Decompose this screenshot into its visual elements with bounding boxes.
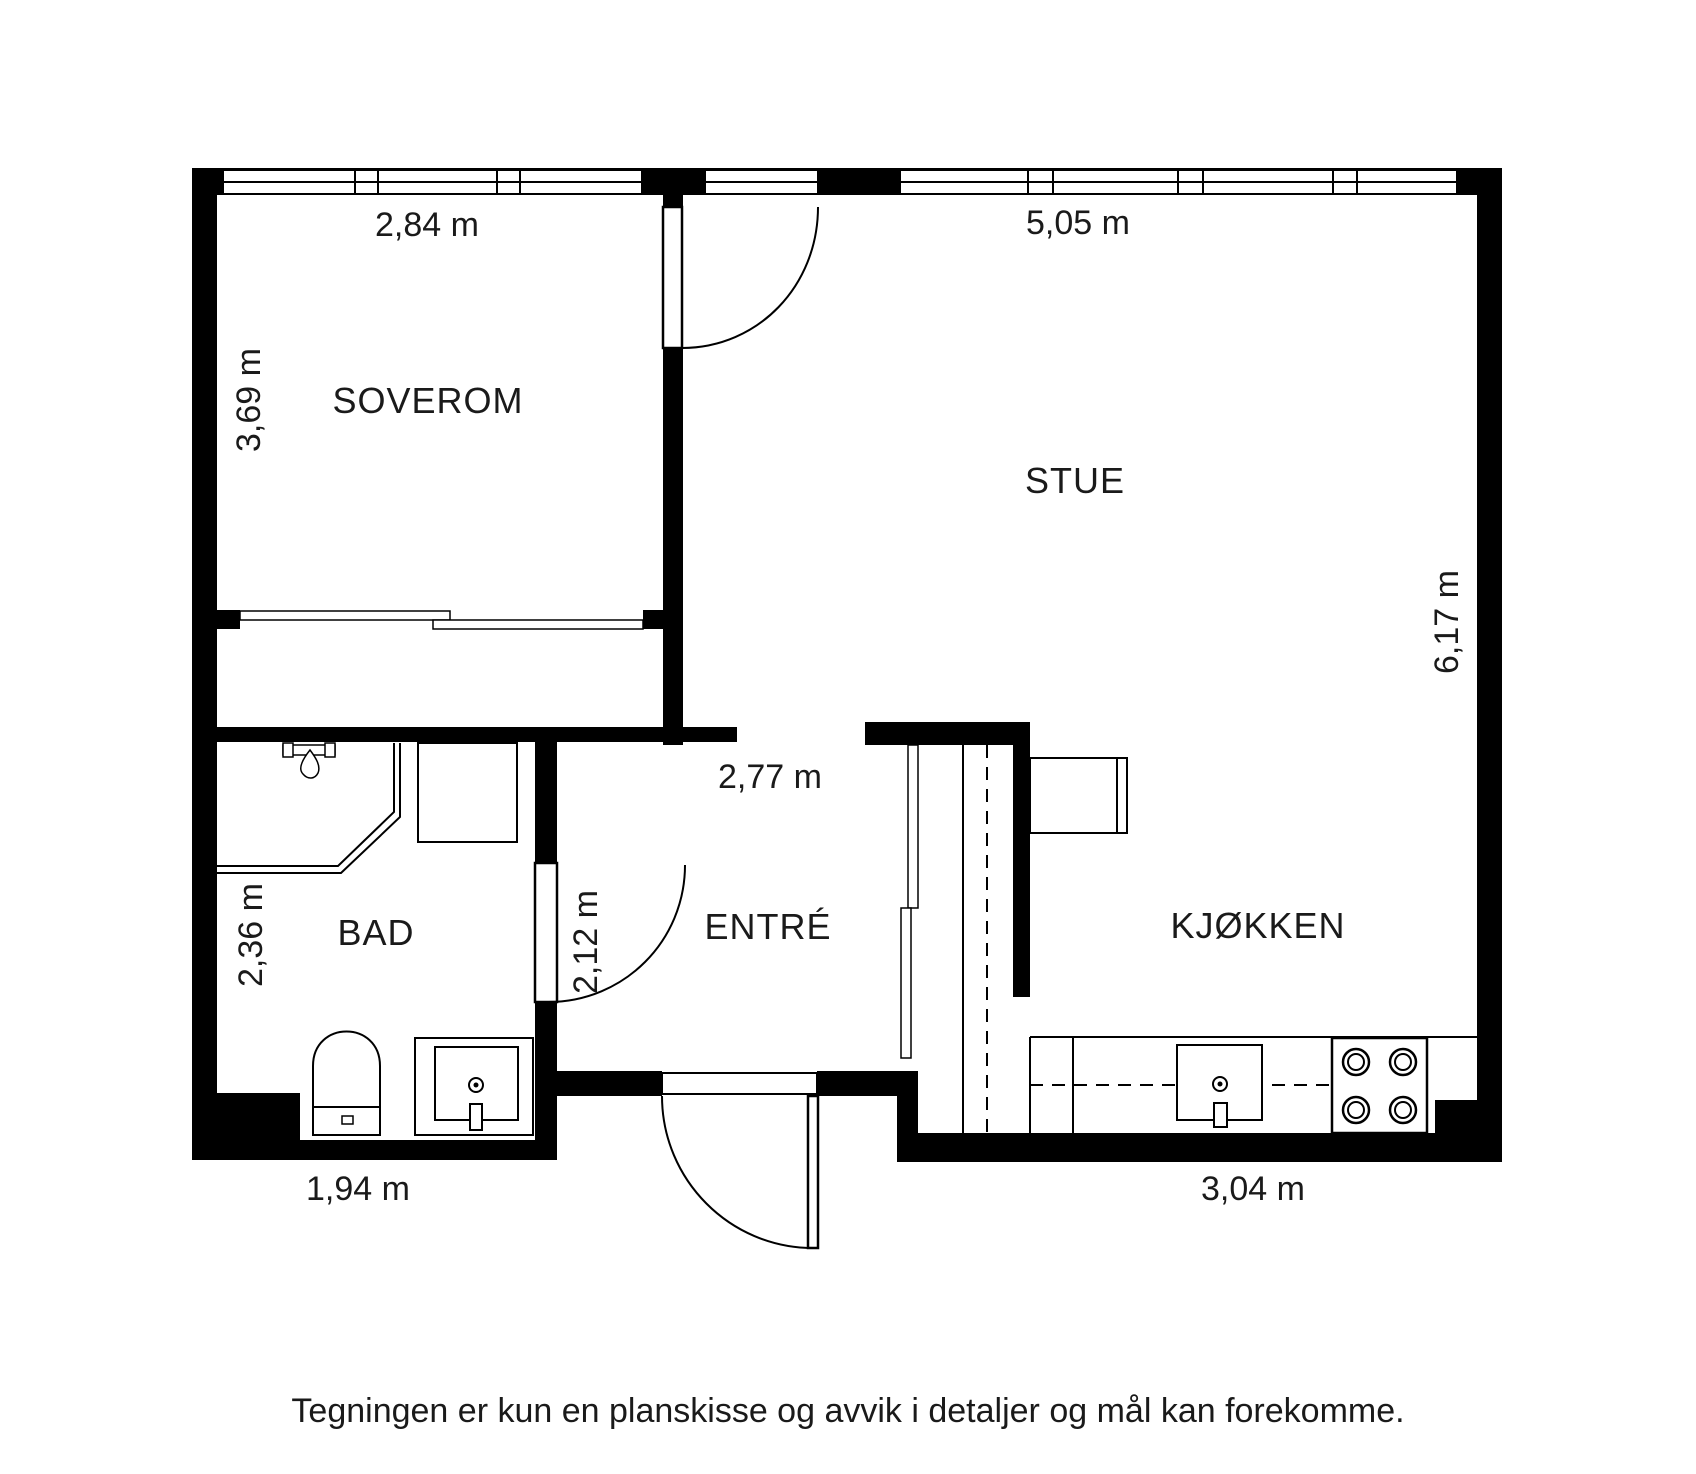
wall-segment-bath-entry-lower	[535, 1000, 557, 1160]
wall-segment-bottom-bath	[192, 1140, 557, 1160]
dim-entre-width: 2,77 m	[718, 758, 822, 796]
wall-segment-bath-corner	[192, 1093, 300, 1140]
disclaimer-text: Tegningen er kun en planskisse og avvik …	[0, 1392, 1696, 1431]
stove-burner-inner-icon	[1348, 1054, 1364, 1070]
floor-plan: SOVEROM STUE BAD ENTRÉ KJØKKEN 2,84 m 5,…	[0, 0, 1696, 1474]
floorplan-page: Sørligata 8D	[0, 0, 1696, 1474]
washing-machine	[418, 743, 517, 842]
kitchen-peninsula-cabinet	[1030, 758, 1127, 833]
wall-segment-bath-top	[217, 727, 737, 742]
wall-segment-left	[192, 195, 217, 1160]
kitchen-sink-drain-dot	[1218, 1082, 1223, 1087]
kitchen-sink-faucet-icon	[1214, 1103, 1227, 1127]
dim-stue-height: 6,17 m	[1428, 570, 1466, 674]
wall-segment-closet-stub-left	[215, 610, 240, 629]
dim-kjokken-width: 3,04 m	[1201, 1170, 1305, 1208]
wall-segment-closet-stub-right	[643, 610, 683, 629]
wall-segment-cabinet-right	[1013, 745, 1030, 997]
entrance-door-leaf	[808, 1096, 818, 1248]
wall-segment-bottom-kitchen	[897, 1133, 1502, 1162]
dim-stue-width: 5,05 m	[1026, 204, 1130, 242]
wall-segment-entry-bottom-left	[557, 1071, 662, 1096]
wardrobe-sliding-panel	[901, 908, 911, 1058]
wall-segment-right	[1477, 195, 1502, 1162]
stove-burner-inner-icon	[1395, 1054, 1411, 1070]
shower-bracket-end-icon	[325, 743, 335, 757]
wall-segment-entry-corner	[897, 1096, 918, 1136]
room-label-stue: STUE	[1025, 460, 1125, 501]
shower-bracket-end-icon	[283, 743, 293, 757]
closet-sliding-door-panel	[240, 611, 450, 620]
wardrobe-sliding-panel	[908, 745, 918, 908]
room-label-bad: BAD	[337, 912, 414, 953]
entrance-door-threshold	[662, 1073, 817, 1094]
dim-bad-height: 2,36 m	[232, 883, 270, 987]
bathroom-door-leaf	[535, 863, 557, 1002]
dim-entre-height: 2,12 m	[567, 890, 605, 994]
dim-bad-width: 1,94 m	[306, 1170, 410, 1208]
bathroom-sink-faucet-icon	[470, 1104, 482, 1130]
dim-soverom-height: 3,69 m	[230, 348, 268, 452]
bathroom-sink-drain-dot	[474, 1083, 479, 1088]
closet-sliding-door-panel	[433, 620, 643, 629]
room-label-kjokken: KJØKKEN	[1170, 905, 1345, 946]
wall-segment-bath-entry-upper	[535, 742, 557, 863]
stove-burner-inner-icon	[1395, 1102, 1411, 1118]
balcony-door-leaf	[663, 207, 682, 348]
stove-burner-inner-icon	[1348, 1102, 1364, 1118]
room-label-soverom: SOVEROM	[332, 380, 523, 421]
toilet-flush-button	[342, 1116, 353, 1124]
wall-segment-entry-bottom-right	[817, 1071, 918, 1096]
wall-segment-entry-cabinet-top	[865, 722, 1030, 745]
dim-soverom-width: 2,84 m	[375, 206, 479, 244]
toilet-bowl	[313, 1032, 380, 1108]
wall-segment-kitchen-corner-step	[1435, 1100, 1477, 1133]
room-label-entre: ENTRÉ	[704, 906, 831, 947]
